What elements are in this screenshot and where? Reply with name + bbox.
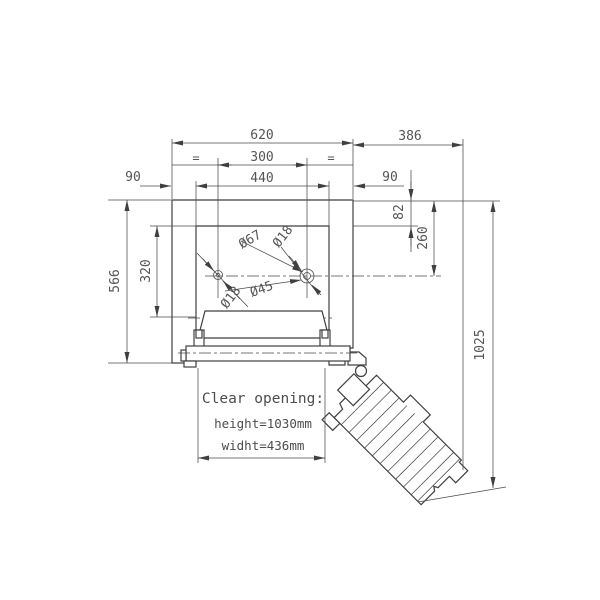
dia-18-left-label: Ø18 (218, 284, 244, 312)
clear-opening-width: widht=436mm (222, 438, 305, 453)
dia-18-right-label: Ø18 (270, 223, 296, 251)
door-sill-step-left (181, 350, 186, 361)
door-closed-position (178, 311, 357, 367)
dia-67-label: Ø67 (236, 228, 264, 253)
dim-82-label: 82 (392, 204, 407, 220)
dim-386-label: 386 (398, 129, 421, 144)
dim-566-label: 566 (108, 269, 123, 292)
dim-320-label: 320 (139, 259, 154, 282)
hinge-mount-block (348, 352, 366, 365)
equal-mark-left: = (192, 151, 199, 165)
technical-drawing-page: 620 386 300 440 90 90 = = 566 320 82 260… (0, 0, 600, 600)
equal-mark-right: = (327, 151, 334, 165)
door-left-bracket (194, 330, 204, 347)
door-open-position (315, 356, 477, 518)
clear-opening-note: Clear opening: height=1030mm widht=436mm (202, 391, 324, 453)
dim-90-right-label: 90 (382, 170, 398, 185)
door-right-bracket (320, 330, 330, 347)
dim-260-label: 260 (416, 226, 431, 249)
leader-pin-right (281, 247, 319, 295)
door-sill-foot-left (184, 361, 196, 367)
dim-440-label: 440 (250, 171, 273, 186)
dim-90-left-label: 90 (125, 170, 141, 185)
pivot-points (205, 158, 441, 298)
clear-opening-heading: Clear opening: (202, 391, 324, 407)
hinge-pivot-circle (356, 366, 367, 377)
dim-300-label: 300 (250, 150, 273, 165)
door-sill-band (186, 346, 350, 361)
clear-opening-height: height=1030mm (214, 416, 312, 431)
chute-door-technical-drawing: 620 386 300 440 90 90 = = 566 320 82 260… (0, 0, 600, 600)
dim-1025-label: 1025 (473, 329, 488, 360)
dia-45-label: Ø45 (248, 279, 275, 301)
dim-620-label: 620 (250, 128, 273, 143)
closed-door-panel (198, 311, 329, 338)
